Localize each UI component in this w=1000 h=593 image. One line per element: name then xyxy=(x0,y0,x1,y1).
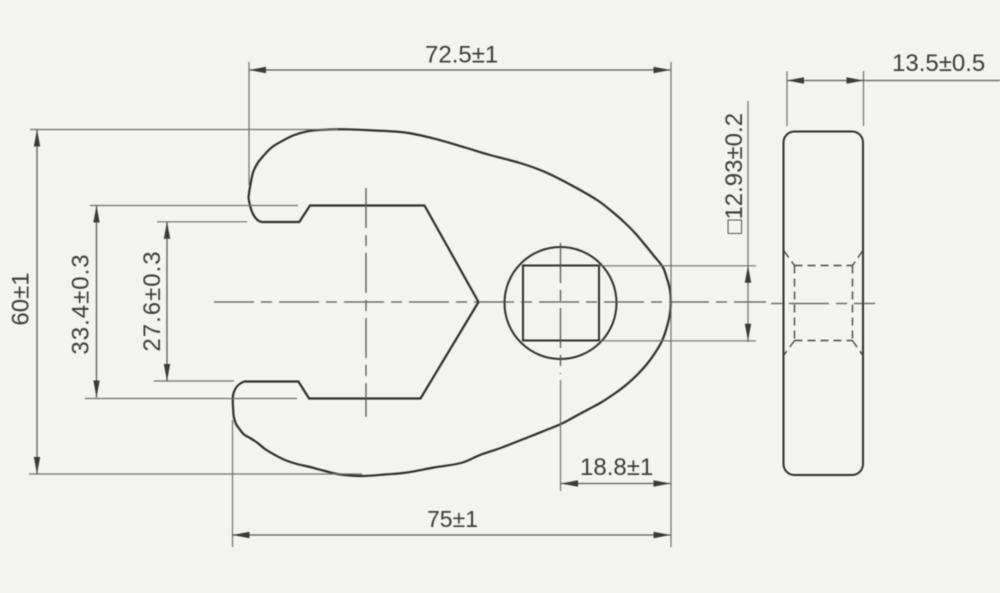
svg-text:72.5±1: 72.5±1 xyxy=(425,42,498,69)
svg-text:18.8±1: 18.8±1 xyxy=(580,454,653,481)
svg-text:60±1: 60±1 xyxy=(8,272,35,325)
svg-text:□12.93±0.2: □12.93±0.2 xyxy=(721,113,748,234)
svg-text:33.4±0.3: 33.4±0.3 xyxy=(68,253,95,354)
svg-text:27.6±0.3: 27.6±0.3 xyxy=(139,250,166,351)
svg-text:13.5±0.5: 13.5±0.5 xyxy=(892,50,985,77)
svg-text:75±1: 75±1 xyxy=(427,506,478,532)
